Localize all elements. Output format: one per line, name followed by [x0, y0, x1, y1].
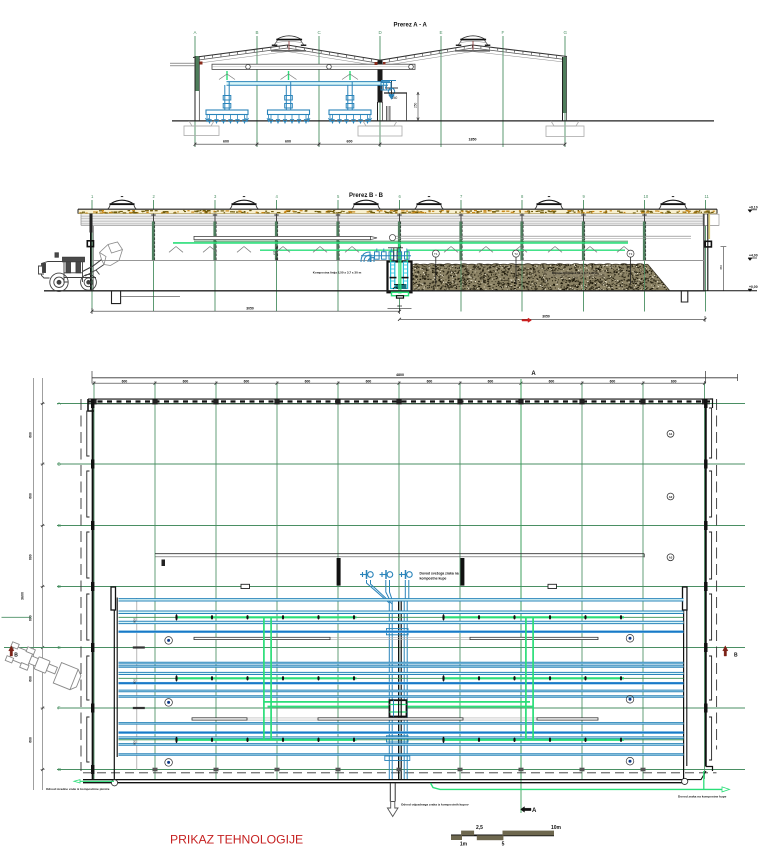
svg-text:G: G	[564, 30, 568, 35]
svg-text:A3: A3	[669, 556, 673, 560]
svg-text:T3: T3	[629, 252, 633, 256]
svg-text:5: 5	[502, 841, 505, 847]
svg-text:4800: 4800	[396, 373, 404, 377]
svg-text:+4,00: +4,00	[749, 254, 758, 258]
svg-text:C: C	[58, 523, 62, 529]
svg-text:600: 600	[549, 379, 555, 383]
svg-text:2,0: 2,0	[272, 250, 276, 255]
svg-text:600: 600	[305, 379, 311, 383]
svg-text:600: 600	[122, 379, 128, 383]
svg-text:B: B	[256, 30, 259, 35]
svg-text:10: 10	[644, 194, 649, 199]
svg-text:10m: 10m	[551, 825, 562, 831]
svg-text:Prerez B - B: Prerez B - B	[349, 193, 384, 199]
svg-text:450: 450	[719, 265, 723, 270]
svg-text:(1x): (1x)	[572, 276, 577, 280]
svg-text:600: 600	[427, 379, 433, 383]
svg-text:D: D	[58, 584, 62, 590]
svg-text:600: 600	[132, 679, 136, 684]
svg-text:A1: A1	[669, 432, 673, 436]
svg-text:600: 600	[366, 379, 372, 383]
svg-text:A: A	[531, 371, 536, 377]
svg-text:600: 600	[29, 432, 33, 438]
svg-text:T2: T2	[514, 252, 518, 256]
svg-text:kompostne kupe: kompostne kupe	[420, 577, 447, 581]
svg-text:B: B	[58, 462, 61, 468]
svg-text:240: 240	[392, 96, 398, 100]
svg-text:11: 11	[705, 194, 710, 199]
svg-text:600: 600	[671, 379, 677, 383]
svg-text:E: E	[58, 645, 61, 651]
svg-text:600: 600	[29, 554, 33, 560]
svg-text:250: 250	[414, 102, 418, 108]
svg-text:G: G	[58, 767, 62, 773]
svg-text:600: 600	[183, 379, 189, 383]
svg-text:B: B	[14, 653, 18, 659]
svg-text:600: 600	[29, 615, 33, 621]
svg-text:600: 600	[488, 379, 494, 383]
svg-text:2,5: 2,5	[476, 825, 483, 831]
svg-text:3050: 3050	[542, 315, 550, 319]
svg-text:Prerez A - A: Prerez A - A	[394, 23, 428, 29]
svg-text:T1: T1	[434, 252, 438, 256]
svg-text:600: 600	[29, 676, 33, 682]
svg-text:600: 600	[347, 140, 353, 144]
svg-text:3600: 3600	[21, 592, 25, 600]
svg-text:Kompostni kup 2,50 x 3,7 x 30: Kompostni kup 2,50 x 3,7 x 30 m	[552, 271, 599, 275]
svg-text:PRIKAZ TEHNOLOGIJE: PRIKAZ TEHNOLOGIJE	[170, 833, 303, 847]
svg-text:+0,00: +0,00	[749, 285, 758, 289]
svg-text:E: E	[440, 30, 443, 35]
svg-text:300: 300	[397, 304, 402, 308]
svg-text:600: 600	[132, 740, 136, 745]
svg-text:A: A	[194, 30, 197, 35]
svg-text:600: 600	[223, 140, 229, 144]
svg-text:A: A	[532, 808, 537, 814]
svg-text:Odvod izcedne vode iz komposti: Odvod izcedne vode iz kompostirne plošče	[46, 787, 110, 791]
svg-text:F: F	[502, 30, 505, 35]
svg-text:600: 600	[29, 493, 33, 499]
svg-text:600: 600	[132, 618, 136, 623]
svg-text:Odvod odpadnega zraka iz kompo: Odvod odpadnega zraka iz kompostnih kupo…	[401, 803, 469, 807]
svg-text:A2: A2	[669, 495, 673, 499]
svg-text:+8,10: +8,10	[749, 206, 758, 210]
svg-text:600: 600	[610, 379, 616, 383]
svg-text:3050: 3050	[246, 307, 254, 311]
svg-text:F: F	[58, 706, 61, 712]
svg-text:600: 600	[244, 379, 250, 383]
svg-text:Kompostna linija 2,50 x 3,7 x: Kompostna linija 2,50 x 3,7 x 30 m	[313, 270, 362, 274]
svg-text:1m: 1m	[460, 841, 468, 847]
svg-text:1850: 1850	[469, 138, 477, 142]
svg-text:Dovod svežega zraka na: Dovod svežega zraka na	[420, 572, 459, 576]
svg-text:600: 600	[29, 737, 33, 743]
svg-text:600: 600	[285, 140, 291, 144]
svg-text:Dovod zraka na kompostne kupe: Dovod zraka na kompostne kupe	[678, 794, 727, 798]
svg-text:B: B	[734, 653, 738, 659]
